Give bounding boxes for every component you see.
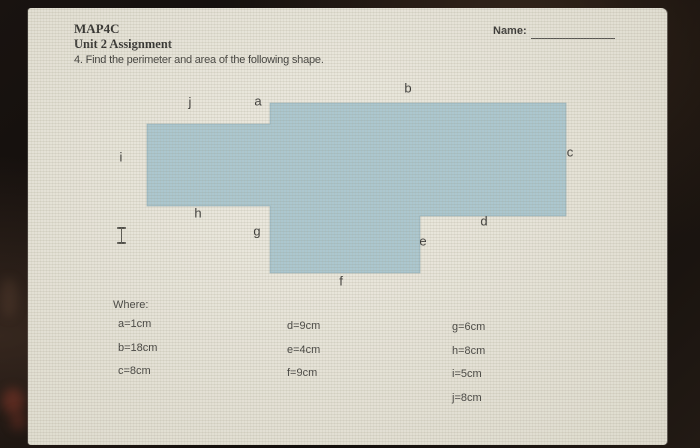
measurement-item: i=5cm bbox=[452, 368, 485, 392]
worksheet-page: MAP4C Unit 2 Assignment 4. Find the peri… bbox=[28, 8, 667, 445]
measurement-item: g=6cm bbox=[452, 321, 485, 345]
side-label-d: d bbox=[480, 215, 487, 228]
side-label-c: c bbox=[567, 146, 574, 159]
bezel-smudge bbox=[10, 412, 26, 430]
measurement-item: b=18cm bbox=[118, 342, 157, 366]
bezel-smudge bbox=[2, 388, 24, 414]
measurement-item: a=1cm bbox=[118, 318, 157, 342]
where-column-1: a=1cmb=18cmc=8cm bbox=[118, 318, 157, 389]
side-label-e: e bbox=[419, 235, 426, 248]
side-label-i: i bbox=[120, 151, 123, 164]
side-label-b: b bbox=[404, 82, 411, 95]
measurement-item: d=9cm bbox=[287, 320, 320, 344]
shape-polygon bbox=[147, 103, 566, 273]
measurement-item: c=8cm bbox=[118, 365, 157, 389]
side-label-h: h bbox=[194, 207, 201, 220]
measurement-item: h=8cm bbox=[452, 345, 485, 369]
bezel-smudge bbox=[0, 278, 18, 318]
where-heading: Where: bbox=[113, 299, 148, 311]
side-label-a: a bbox=[254, 95, 261, 108]
side-label-g: g bbox=[253, 225, 260, 238]
measurement-item: f=9cm bbox=[287, 367, 320, 391]
measurement-item: j=8cm bbox=[452, 392, 485, 416]
side-label-j: j bbox=[189, 96, 192, 109]
measurement-item: e=4cm bbox=[287, 344, 320, 368]
where-column-2: d=9cme=4cmf=9cm bbox=[287, 320, 320, 391]
where-column-3: g=6cmh=8cmi=5cmj=8cm bbox=[452, 321, 485, 415]
side-label-f: f bbox=[339, 275, 343, 288]
text-cursor-icon bbox=[117, 227, 126, 244]
monitor-photo: { "header": { "course_code": "MAP4C", "a… bbox=[0, 0, 700, 448]
